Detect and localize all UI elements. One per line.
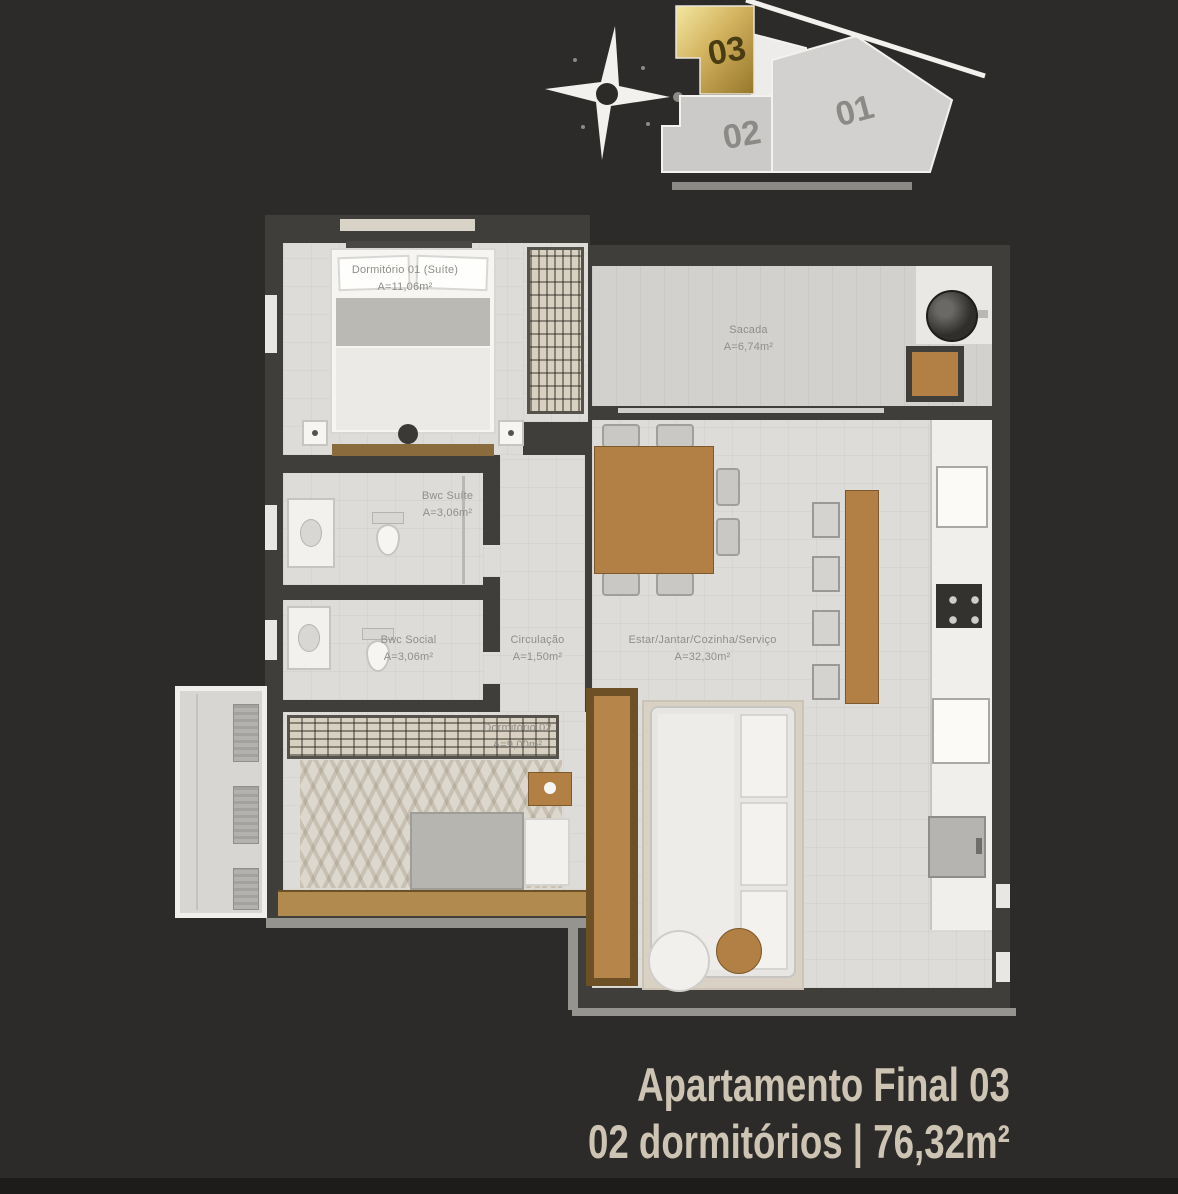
lamp-dorm02 xyxy=(544,782,556,794)
building-key: 03 02 01 xyxy=(662,0,985,190)
vanity-bwc-social xyxy=(287,606,331,670)
dining-chair-5 xyxy=(716,468,740,506)
bottom-edge xyxy=(0,1178,1178,1194)
ledge-line xyxy=(196,694,198,910)
dining-table xyxy=(594,446,714,574)
room-area: A=6,74m² xyxy=(686,339,811,356)
ac-condenser-3 xyxy=(233,868,259,910)
room-name: Bwc Social xyxy=(346,632,471,649)
pouf xyxy=(648,930,710,992)
dining-chair-4 xyxy=(656,572,694,596)
room-area: A=3,06m² xyxy=(346,649,471,666)
grill-handle xyxy=(978,310,988,318)
stool-4 xyxy=(812,664,840,700)
stool-3 xyxy=(812,610,840,646)
poster-title: Apartamento Final 03 02 dormitórios | 76… xyxy=(110,1056,1010,1171)
side-table xyxy=(716,928,762,974)
sofa-cushion-1 xyxy=(740,714,788,798)
ac-condenser-1 xyxy=(233,704,259,762)
faucet xyxy=(976,838,982,854)
vanity-bwc-suite xyxy=(287,498,335,568)
room-area: A=11,06m² xyxy=(305,279,505,296)
label-estar: Estar/Jantar/Cozinha/Serviço A=32,30m² xyxy=(590,632,815,665)
fridge xyxy=(936,466,988,528)
bed-duvet xyxy=(336,348,490,430)
label-bwc-social: Bwc Social A=3,06m² xyxy=(346,632,471,665)
door-gap-bwc-suite xyxy=(483,545,500,577)
floor-corridor xyxy=(500,455,585,712)
room-area: A=32,30m² xyxy=(590,649,815,666)
stool-2 xyxy=(812,556,840,592)
room-name: Bwc Suíte xyxy=(385,488,510,505)
label-dorm01: Dormitório 01 (Suíte) A=11,06m² xyxy=(305,262,505,295)
sofa-cushion-2 xyxy=(740,802,788,886)
stool-1 xyxy=(812,502,840,538)
cooktop xyxy=(936,584,982,628)
label-bwc-suite: Bwc Suíte A=3,06m² xyxy=(385,488,510,521)
window-right-2 xyxy=(996,952,1010,982)
room-area: A=1,50m² xyxy=(475,649,600,666)
bed-dorm02-pillow xyxy=(524,818,570,886)
nightstand-right xyxy=(498,420,524,446)
label-dorm02: Dormitório 02 A=9,00m² xyxy=(445,720,590,753)
window-right-1 xyxy=(996,884,1010,908)
room-name: Sacada xyxy=(686,322,811,339)
ac-condenser-2 xyxy=(233,786,259,844)
oven xyxy=(932,698,990,764)
key-unit-03-label: 03 xyxy=(705,29,749,73)
floorplan-poster: 03 02 01 xyxy=(0,0,1178,1194)
decor-plant xyxy=(398,424,418,444)
wardrobe-dorm01 xyxy=(527,247,584,414)
trim-bottom-right xyxy=(572,1008,1016,1016)
bed-dorm02-duvet xyxy=(410,812,524,890)
window-top-dorm01 xyxy=(340,219,475,231)
bed-runner xyxy=(336,298,490,346)
dresser-dorm01 xyxy=(332,444,494,456)
room-name: Estar/Jantar/Cozinha/Serviço xyxy=(590,632,815,649)
top-band-graphic: 03 02 01 xyxy=(0,0,1178,210)
label-sacada: Sacada A=6,74m² xyxy=(686,322,811,355)
key-base-bar xyxy=(672,182,912,190)
key-unit-02-label: 02 xyxy=(720,113,764,157)
tv-panel-inner xyxy=(594,696,630,978)
window-sill-dorm02 xyxy=(278,890,590,916)
kitchen-island xyxy=(845,490,879,704)
title-line-2: 02 dormitórios | 76,32m² xyxy=(588,1113,1010,1170)
room-area: A=3,06m² xyxy=(385,505,510,522)
label-circulacao: Circulação A=1,50m² xyxy=(475,632,600,665)
window-left-bwc-suite xyxy=(265,505,277,550)
window-left-bwc-social xyxy=(265,620,277,660)
title-line-1: Apartamento Final 03 xyxy=(637,1056,1010,1113)
trim-side xyxy=(568,918,578,1010)
dining-chair-1 xyxy=(602,424,640,448)
dining-chair-2 xyxy=(656,424,694,448)
dining-chair-6 xyxy=(716,518,740,556)
dining-chair-3 xyxy=(602,572,640,596)
room-name: Circulação xyxy=(475,632,600,649)
trim-bottom-left xyxy=(266,918,590,928)
room-name: Dormitório 02 xyxy=(445,720,590,737)
room-name: Dormitório 01 (Suíte) xyxy=(305,262,505,279)
sliding-door xyxy=(618,408,884,413)
grill-counter xyxy=(906,346,964,402)
room-area: A=9,00m² xyxy=(445,737,590,754)
nightstand-left xyxy=(302,420,328,446)
window-left-dorm01 xyxy=(265,295,277,353)
grill xyxy=(926,290,978,342)
